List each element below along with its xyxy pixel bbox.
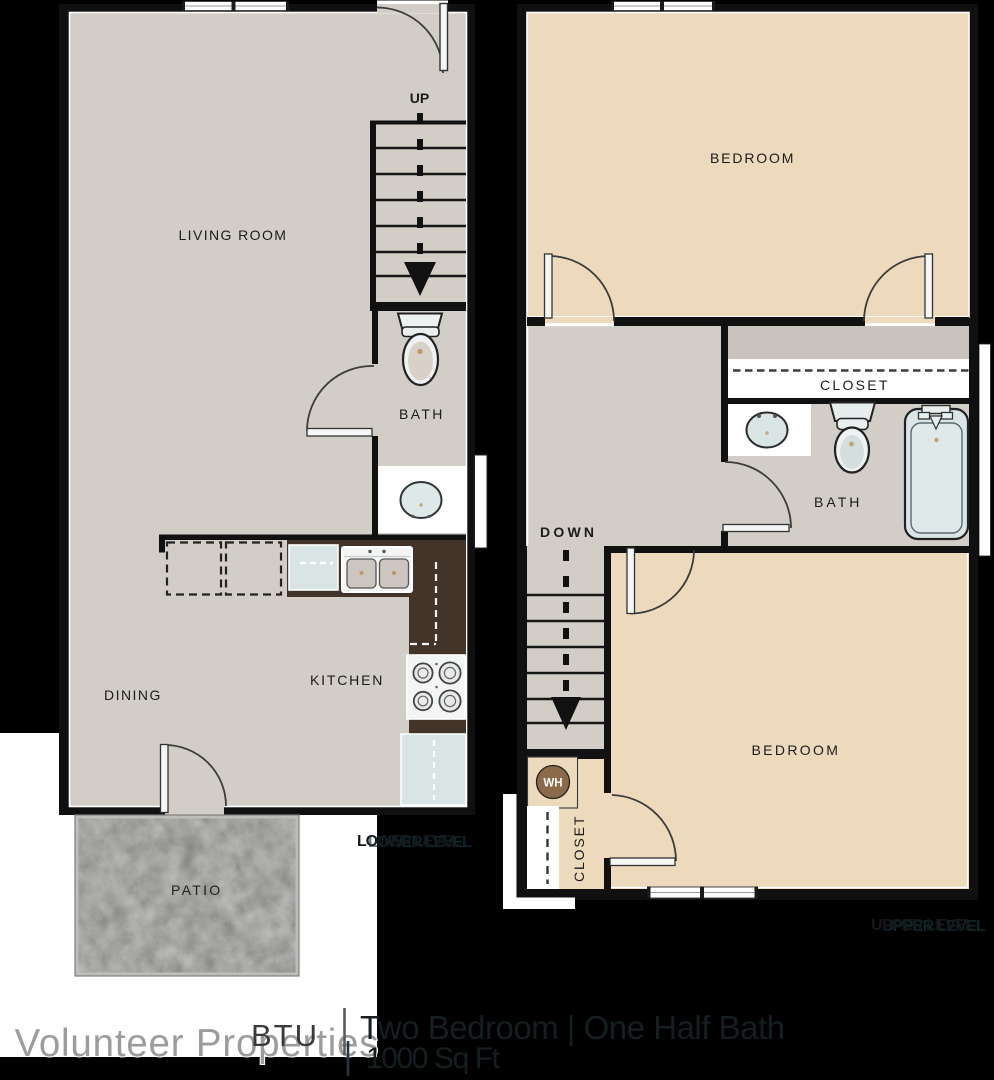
svg-text:Volunteer Properties: Volunteer Properties <box>15 1022 379 1065</box>
svg-text:CLOSET: CLOSET <box>571 816 587 882</box>
svg-text:BEDROOM: BEDROOM <box>752 742 839 758</box>
svg-text:DOWN: DOWN <box>540 524 594 540</box>
svg-text:BATH: BATH <box>399 406 443 422</box>
svg-text:LOWER LEVEL: LOWER LEVEL <box>357 833 461 850</box>
svg-text:PATIO: PATIO <box>171 882 221 898</box>
svg-text:WH: WH <box>543 778 562 790</box>
svg-text:BEDROOM: BEDROOM <box>710 150 794 166</box>
svg-text:Two Bedroom | One Half Bath: Two Bedroom | One Half Bath <box>360 1009 785 1046</box>
svg-text:KITCHEN: KITCHEN <box>310 672 383 688</box>
svg-text:LIVING ROOM: LIVING ROOM <box>179 227 287 243</box>
svg-text:UPPER LEVEL: UPPER LEVEL <box>871 917 975 934</box>
svg-text:BATH: BATH <box>814 494 860 510</box>
svg-text:1000 Sq Ft: 1000 Sq Ft <box>366 1042 501 1075</box>
svg-text:UP: UP <box>410 90 429 106</box>
svg-text:DINING: DINING <box>104 687 161 703</box>
svg-text:BTU: BTU <box>251 1018 319 1053</box>
